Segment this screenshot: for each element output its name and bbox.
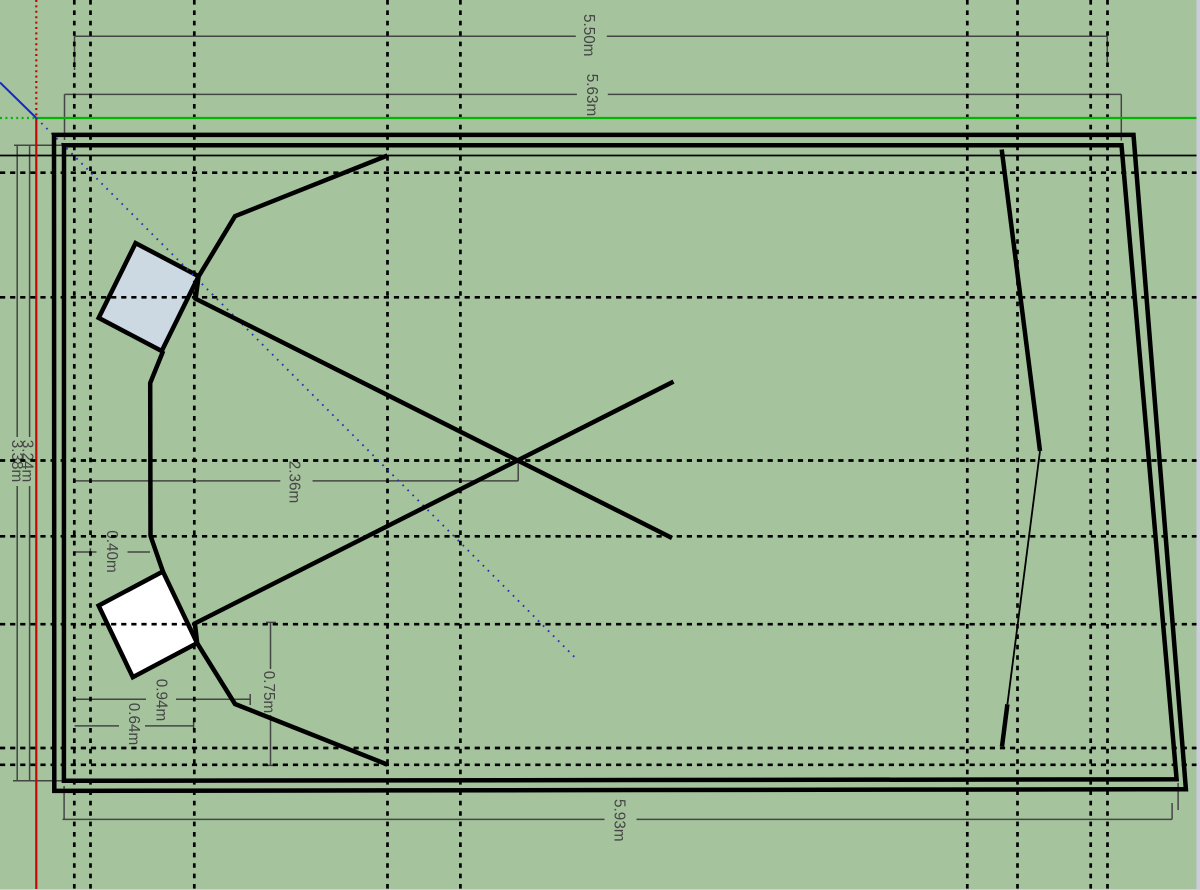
svg-text:0.94m: 0.94m: [153, 679, 170, 722]
svg-text:0.75m: 0.75m: [260, 671, 277, 714]
svg-text:5.63m: 5.63m: [583, 74, 600, 117]
svg-text:5.93m: 5.93m: [611, 799, 628, 842]
svg-text:2.36m: 2.36m: [286, 461, 303, 504]
svg-text:5.50m: 5.50m: [580, 14, 597, 57]
svg-text:0.64m: 0.64m: [125, 703, 142, 746]
